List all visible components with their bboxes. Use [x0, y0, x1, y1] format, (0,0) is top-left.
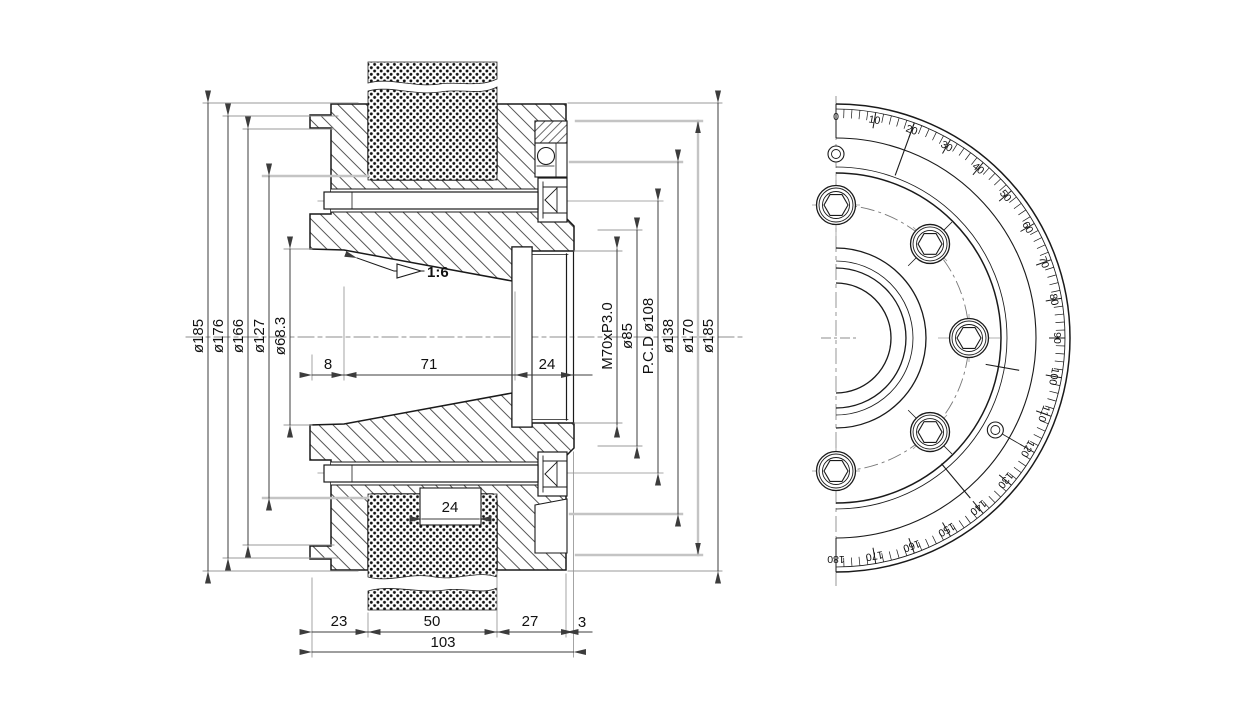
minor-tick: [925, 129, 929, 137]
dim-label-od-85: ø85: [619, 323, 636, 349]
minor-tick: [932, 132, 936, 140]
minor-tick: [1055, 322, 1064, 323]
dim-label-bore-68-3: ø68.3: [272, 317, 289, 355]
pin-hole: [987, 422, 1022, 446]
minor-tick: [882, 114, 884, 123]
socket-screw: [812, 174, 860, 236]
minor-tick: [897, 549, 899, 558]
front-view: 0102030405060708090100110120130140150160…: [812, 96, 1070, 586]
ball-detent-assembly: [535, 121, 567, 177]
scale-label: 120: [1018, 438, 1037, 459]
dim-label-od-127: ø127: [251, 319, 268, 353]
dim-label-groove-24: 24: [442, 499, 459, 516]
dim-label-length-24-top: 24: [539, 356, 556, 373]
minor-tick: [859, 110, 860, 119]
minor-tick: [994, 179, 1000, 185]
minor-tick: [1055, 314, 1064, 315]
minor-tick: [1055, 361, 1064, 362]
index-line: [986, 364, 1019, 370]
screw-head-pocket: [538, 178, 567, 222]
minor-tick: [989, 173, 995, 179]
bolt-shaft: [324, 465, 538, 482]
minor-tick: [965, 153, 970, 160]
section-view: 1:6: [186, 62, 744, 657]
minor-tick: [1014, 203, 1021, 208]
minor-tick: [1014, 467, 1021, 472]
scale-label: 70: [1036, 255, 1051, 270]
scale-label: 80: [1047, 293, 1061, 307]
minor-tick: [851, 110, 852, 119]
dim-label-od-185-left: ø185: [190, 319, 207, 353]
scale-label: 10: [868, 113, 882, 127]
minor-tick: [959, 520, 964, 527]
taper-symbol-icon: [397, 264, 421, 278]
arrowhead: [695, 543, 701, 555]
pin-hole-outer: [828, 146, 844, 162]
minor-tick: [1049, 283, 1058, 285]
dim-label-od-138: ø138: [660, 319, 677, 353]
arrowhead: [695, 121, 701, 133]
minor-tick: [1037, 427, 1045, 431]
minor-tick: [859, 557, 860, 566]
minor-tick: [851, 557, 852, 566]
dim-label-length-8: 8: [324, 356, 332, 373]
scale-label: 130: [995, 469, 1016, 490]
minor-tick: [1034, 434, 1042, 438]
minor-tick: [1045, 267, 1054, 270]
scale-label: 150: [936, 520, 957, 539]
dim-label-thread-m70: M70xP3.0: [599, 302, 616, 370]
lower-slot-pocket: [535, 499, 567, 553]
scale-label: 140: [967, 497, 988, 518]
engineering-drawing-canvas: 1:6: [0, 0, 1240, 719]
minor-tick: [925, 539, 929, 547]
scale-label: 170: [865, 548, 884, 563]
dim-label-length-71: 71: [421, 356, 438, 373]
socket-screw: [908, 410, 952, 454]
knurled-sleeve-upper: [368, 62, 497, 180]
minor-tick: [1047, 399, 1056, 401]
minor-tick: [1047, 275, 1056, 277]
pin-hole-outer: [987, 422, 1003, 438]
scale-label: 0: [833, 111, 839, 123]
dim-label-pcd-108: P.C.D ø108: [640, 298, 657, 374]
dim-label-length-27: 27: [522, 613, 539, 630]
bolt-shaft: [324, 192, 538, 209]
minor-tick: [897, 118, 899, 127]
dim-label-length-103: 103: [430, 634, 455, 651]
index-line: [941, 464, 970, 498]
insert-nut: [535, 121, 567, 143]
dim-label-od-166: ø166: [230, 319, 247, 353]
socket-screw: [812, 440, 860, 502]
minor-tick: [1054, 306, 1063, 307]
minor-tick: [989, 496, 995, 502]
minor-tick: [867, 111, 868, 120]
minor-tick: [965, 516, 970, 523]
minor-tick: [959, 148, 964, 155]
minor-tick: [889, 116, 891, 125]
detent-ball-icon: [538, 148, 555, 165]
minor-tick: [1034, 238, 1042, 242]
minor-tick: [1018, 461, 1025, 466]
scale-label: 180: [827, 553, 845, 565]
dim-label-od-170: ø170: [680, 319, 697, 353]
screw-head-pocket: [538, 452, 567, 496]
minor-tick: [1049, 391, 1058, 393]
scale-label: 90: [1051, 332, 1063, 344]
pin-hole: [828, 146, 844, 162]
dim-label-length-23: 23: [331, 613, 348, 630]
socket-screw: [908, 222, 952, 266]
dim-label-length-3: 3: [578, 614, 586, 631]
dim-label-length-50: 50: [424, 613, 441, 630]
scale-label: 100: [1046, 367, 1061, 386]
socket-screw: [938, 314, 1000, 362]
taper-ratio-label: 1:6: [427, 264, 449, 281]
small-holes: [828, 146, 1022, 446]
dim-label-od-176: ø176: [210, 319, 227, 353]
dim-label-od-185-right: ø185: [700, 319, 717, 353]
minor-tick: [1037, 245, 1045, 249]
minor-tick: [1055, 353, 1064, 354]
minor-tick: [1018, 210, 1025, 215]
minor-tick: [932, 536, 936, 544]
minor-tick: [889, 551, 891, 560]
minor-tick: [994, 491, 1000, 497]
engineering-drawing-page: 1:6: [0, 0, 1240, 719]
